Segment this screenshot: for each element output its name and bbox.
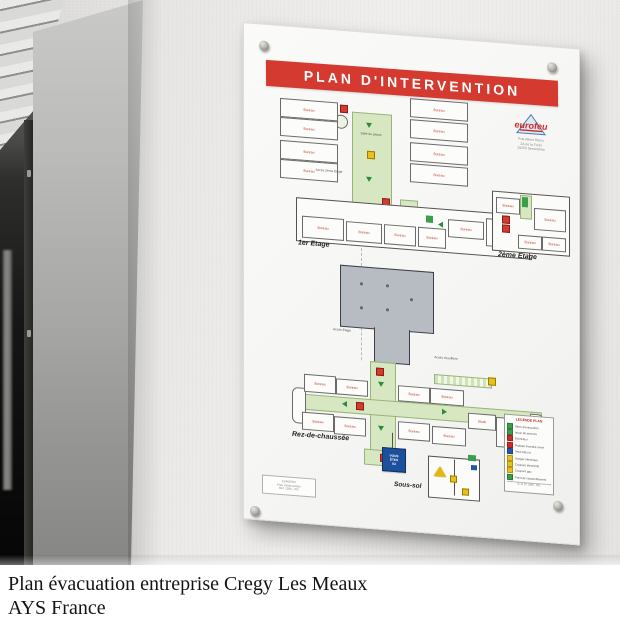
wall-corner-shadow — [128, 0, 162, 565]
room-bureau: Bureau — [410, 163, 468, 187]
second-floor-plan: Bureau Bureau Bureau Bureau 2ème Etage — [490, 188, 572, 264]
room-bureau: Bureau — [302, 216, 344, 241]
basement-plan — [426, 449, 482, 503]
manufacturer-plate: EUROFEU Plan d'intervention Réf. 1396 - … — [262, 474, 316, 497]
column-dot — [386, 308, 389, 311]
room-bureau: Bureau — [418, 227, 446, 249]
cutoff-icon — [462, 488, 469, 496]
extinguisher-icon — [340, 105, 348, 114]
electrical-hazard-icon — [434, 466, 446, 477]
legend-box: LEGENDE PLAN Sens d'évacuation Issue de … — [504, 414, 554, 496]
room-bureau: Bureau — [542, 237, 566, 253]
column-dot — [360, 306, 363, 309]
you-are-here-marker: VOUS ÊTES ICI — [382, 447, 406, 473]
room-bureau: Bureau — [518, 235, 542, 251]
caption-subtitle: AYS France — [8, 596, 620, 620]
access-boiler-label: Accès chaufferie — [428, 356, 464, 363]
room-bureau: Bureau — [336, 378, 368, 397]
room-bureau: Bureau — [430, 388, 464, 407]
exit-icon — [426, 215, 433, 223]
evacuation-arrow-icon — [442, 409, 447, 415]
basement-label: Sous-sol — [394, 481, 421, 490]
external-walkway — [434, 374, 492, 389]
room-bureau: Bureau — [534, 208, 566, 233]
caption: Plan évacuation entreprise Cregy Les Mea… — [0, 565, 620, 620]
evacuation-plan-board: PLAN D'INTERVENTION eurofeu Rue Albert R… — [243, 22, 580, 546]
room-bureau: Bureau — [302, 412, 334, 433]
column-dot — [386, 284, 389, 287]
hose-reel-icon — [502, 224, 510, 233]
door-hinge — [27, 170, 31, 177]
extinguisher-icon — [502, 215, 510, 224]
photo-bottom-band — [0, 555, 620, 565]
screw-icon — [547, 62, 557, 73]
room-bureau: Bureau — [496, 197, 520, 215]
room-bureau: Bureau — [448, 219, 484, 240]
hallway-door — [3, 250, 12, 490]
marker-connector — [392, 433, 393, 448]
first-floor-label: 1er Etage — [298, 239, 330, 248]
evacuation-arrow-icon — [366, 123, 372, 128]
column-dot — [410, 298, 413, 301]
photo-area: PLAN D'INTERVENTION eurofeu Rue Albert R… — [0, 0, 620, 565]
door-hinge — [27, 330, 31, 337]
evacuation-arrow-icon — [342, 401, 347, 407]
screw-icon — [250, 506, 260, 517]
gas-cutoff-icon — [488, 377, 496, 386]
warehouse-block-plan: Accès Etage — [340, 265, 432, 368]
evacuation-arrow-icon — [366, 177, 372, 182]
room-bureau: Bureau — [280, 117, 338, 141]
cutoff-icon — [450, 475, 457, 483]
room-bureau: Bureau — [304, 374, 336, 395]
room-bureau: Bureau — [432, 426, 466, 447]
access-floor-label: Accès Etage — [326, 328, 358, 334]
exit-icon — [468, 455, 476, 462]
eurofeu-logo: eurofeu Rue Albert Remy ZA de la Forêt 2… — [500, 109, 562, 166]
room-bureau: Bureau — [346, 221, 382, 244]
screw-icon — [259, 40, 269, 51]
extinguisher-icon — [356, 402, 364, 411]
cutoff-icon — [367, 151, 375, 160]
room-bureau: Bureau — [398, 385, 430, 404]
room-bureau: Bureau — [384, 224, 416, 247]
screw-icon — [553, 500, 563, 511]
evacuation-arrow-icon — [378, 382, 384, 387]
warehouse-hall — [340, 265, 434, 334]
marker-icon — [471, 465, 477, 470]
door-frame-edge — [24, 120, 34, 565]
room-stock: Stock — [468, 413, 496, 431]
evacuation-arrow-icon — [378, 426, 384, 431]
caption-title: Plan évacuation entreprise Cregy Les Mea… — [8, 572, 620, 596]
exit-icon — [522, 197, 528, 207]
room-bureau: Bureau — [410, 119, 468, 143]
extinguisher-icon — [376, 367, 384, 376]
room-bureau: Bureau — [410, 142, 468, 166]
room-bureau: Bureau — [410, 98, 468, 122]
column-dot — [360, 282, 363, 285]
room-bureau: Bureau — [398, 421, 430, 442]
legend-swatch — [507, 474, 513, 480]
photo-of-wall-mounted-plan: PLAN D'INTERVENTION eurofeu Rue Albert R… — [0, 0, 620, 620]
evacuation-arrow-icon — [438, 221, 443, 227]
